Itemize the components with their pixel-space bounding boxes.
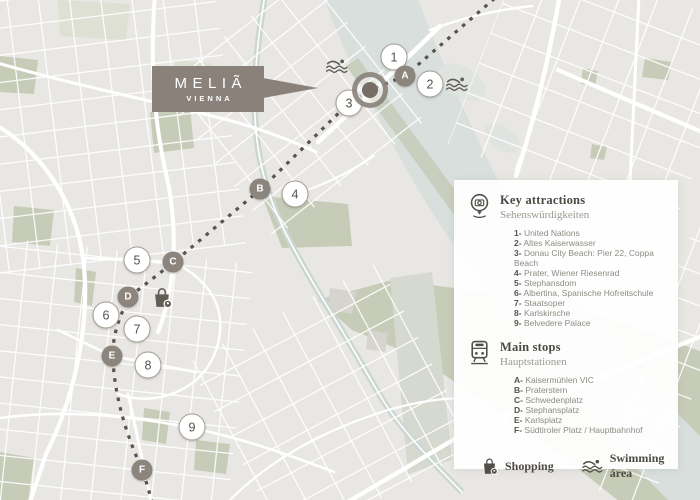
map-marker-attraction-4[interactable]: 4 (282, 181, 309, 208)
attractions-subtitle: Sehenswürdigkeiten (500, 209, 589, 221)
stop-item: A- Kaisermühlen VIC (514, 375, 666, 385)
map-marker-attraction-5[interactable]: 5 (124, 247, 151, 274)
attraction-item: 4- Prater, Wiener Riesenrad (514, 268, 666, 278)
attraction-item: 7- Staatsoper (514, 298, 666, 308)
attraction-item: 6- Albertina, Spanische Hofreitschule (514, 288, 666, 298)
swimming-area-icon (446, 77, 469, 92)
stop-item: D- Stephansplatz (514, 405, 666, 415)
map-marker-stop-D[interactable]: D (118, 287, 139, 308)
shopping-bag-icon (481, 458, 498, 475)
train-icon (468, 340, 491, 365)
attraction-item: 1- United Nations (514, 228, 666, 238)
legend-footer: Shopping Swimming área (481, 451, 666, 481)
stop-item: E- Karlsplatz (514, 415, 666, 425)
shopping-legend: Shopping (481, 458, 554, 475)
swimming-area-icon (326, 59, 349, 74)
stops-title: Main stops (500, 340, 567, 355)
attraction-item: 2- Altes Kaiserwasser (514, 238, 666, 248)
stops-list: A- Kaisermühlen VIC B- Praterstern C- Sc… (468, 375, 666, 435)
shopping-area-icon (152, 288, 173, 309)
stop-item: B- Praterstern (514, 385, 666, 395)
attraction-item: 9- Belvedere Palace (514, 318, 666, 328)
attraction-item: 5- Stephansdom (514, 278, 666, 288)
vienna-hotel-map: 123456789ABCDEF MELIÃ VIENNA Key attract… (0, 0, 700, 500)
map-marker-stop-A[interactable]: A (395, 66, 416, 87)
stop-item: F- Südtiroler Platz / Hauptbahnhof (514, 425, 666, 435)
map-marker-attraction-8[interactable]: 8 (135, 352, 162, 379)
legend-section-stops: Main stops Hauptstationen A- Kaisermühle… (468, 340, 666, 435)
swimming-legend: Swimming área (582, 451, 666, 481)
map-marker-attraction-7[interactable]: 7 (124, 316, 151, 343)
brand-name: MELIÃ (169, 75, 247, 92)
hotel-location-marker[interactable] (352, 72, 388, 108)
map-marker-stop-E[interactable]: E (102, 346, 123, 367)
map-marker-stop-B[interactable]: B (250, 179, 271, 200)
legend-section-attractions: Key attractions Sehenswürdigkeiten 1- Un… (468, 193, 666, 328)
attraction-item: 3- Donau City Beach: Pier 22, Coppa Beac… (514, 248, 666, 268)
stops-subtitle: Hauptstationen (500, 356, 567, 368)
attractions-title: Key attractions (500, 193, 589, 208)
map-marker-attraction-2[interactable]: 2 (417, 71, 444, 98)
camera-pin-icon (468, 193, 491, 218)
brand-city: VIENNA (183, 94, 232, 103)
callout-pointer (263, 78, 318, 98)
legend-panel: Key attractions Sehenswürdigkeiten 1- Un… (454, 180, 678, 469)
hotel-callout: MELIÃ VIENNA (152, 66, 264, 112)
attractions-list: 1- United Nations 2- Altes Kaiserwasser … (468, 228, 666, 328)
attraction-item: 8- Karlskirsche (514, 308, 666, 318)
map-marker-stop-F[interactable]: F (132, 460, 153, 481)
map-marker-attraction-6[interactable]: 6 (93, 302, 120, 329)
swimmer-icon (582, 459, 603, 473)
map-marker-attraction-9[interactable]: 9 (179, 414, 206, 441)
map-marker-stop-C[interactable]: C (163, 252, 184, 273)
stop-item: C- Schwedenplatz (514, 395, 666, 405)
